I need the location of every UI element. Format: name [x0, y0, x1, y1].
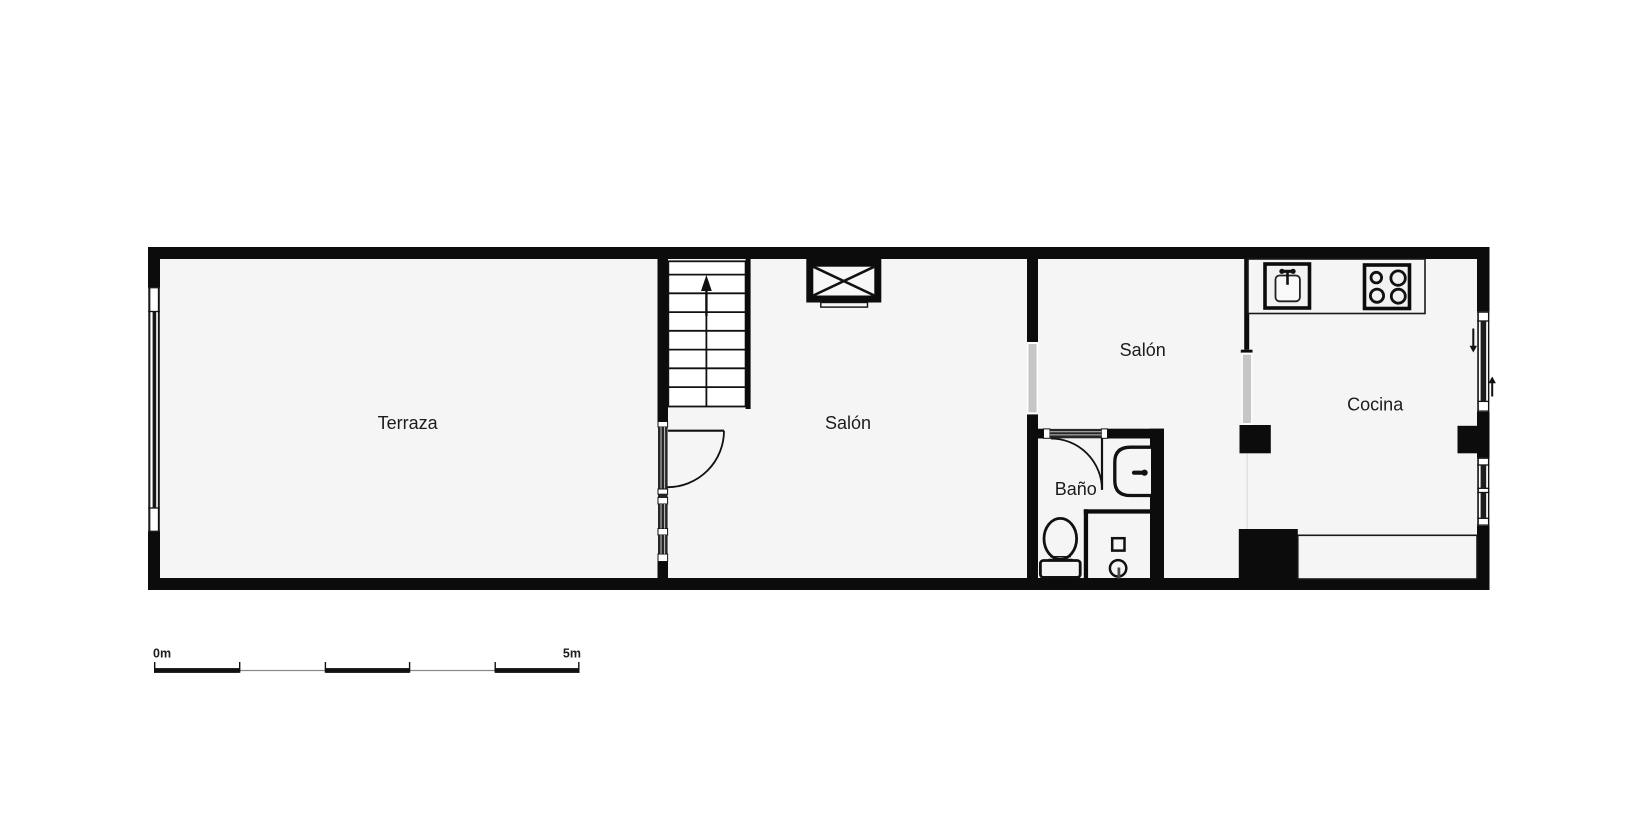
svg-text:Salón: Salón — [1120, 340, 1166, 360]
svg-text:Cocina: Cocina — [1347, 395, 1404, 415]
svg-text:Salón: Salón — [825, 413, 871, 433]
svg-text:5m: 5m — [563, 647, 581, 661]
svg-text:Baño: Baño — [1055, 479, 1097, 499]
svg-text:Terraza: Terraza — [378, 413, 439, 433]
svg-text:0m: 0m — [153, 647, 171, 661]
